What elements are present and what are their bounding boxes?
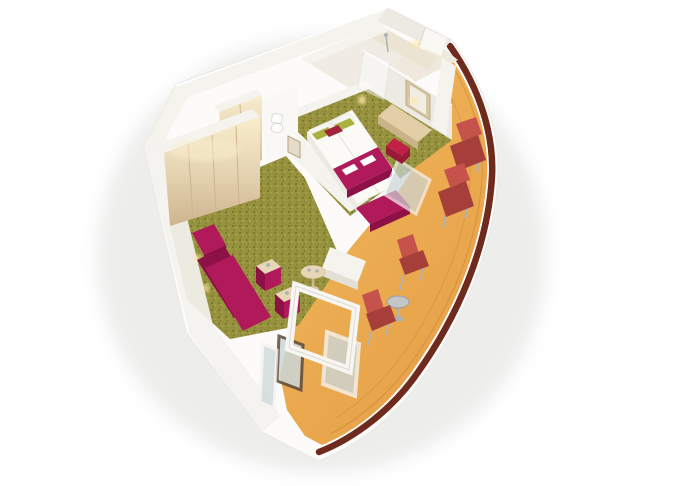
round-coffee-table xyxy=(301,266,325,279)
table-item xyxy=(307,268,311,272)
shower-head-icon xyxy=(384,33,388,37)
cube-table-item xyxy=(266,263,270,267)
toilet-tank xyxy=(271,113,282,123)
table-item xyxy=(315,269,319,273)
cabin-3d-scene xyxy=(0,0,680,486)
toilet-bowl xyxy=(271,124,283,133)
glass-side-pane xyxy=(260,344,277,408)
wardrobe-light-glow xyxy=(169,139,241,161)
bedside-lamp-glow xyxy=(358,96,366,105)
cabin-floorplan-render xyxy=(0,0,680,486)
vanity-light-glow xyxy=(409,98,419,105)
wall-light-spot xyxy=(203,284,210,292)
cube-table-item xyxy=(285,291,289,295)
